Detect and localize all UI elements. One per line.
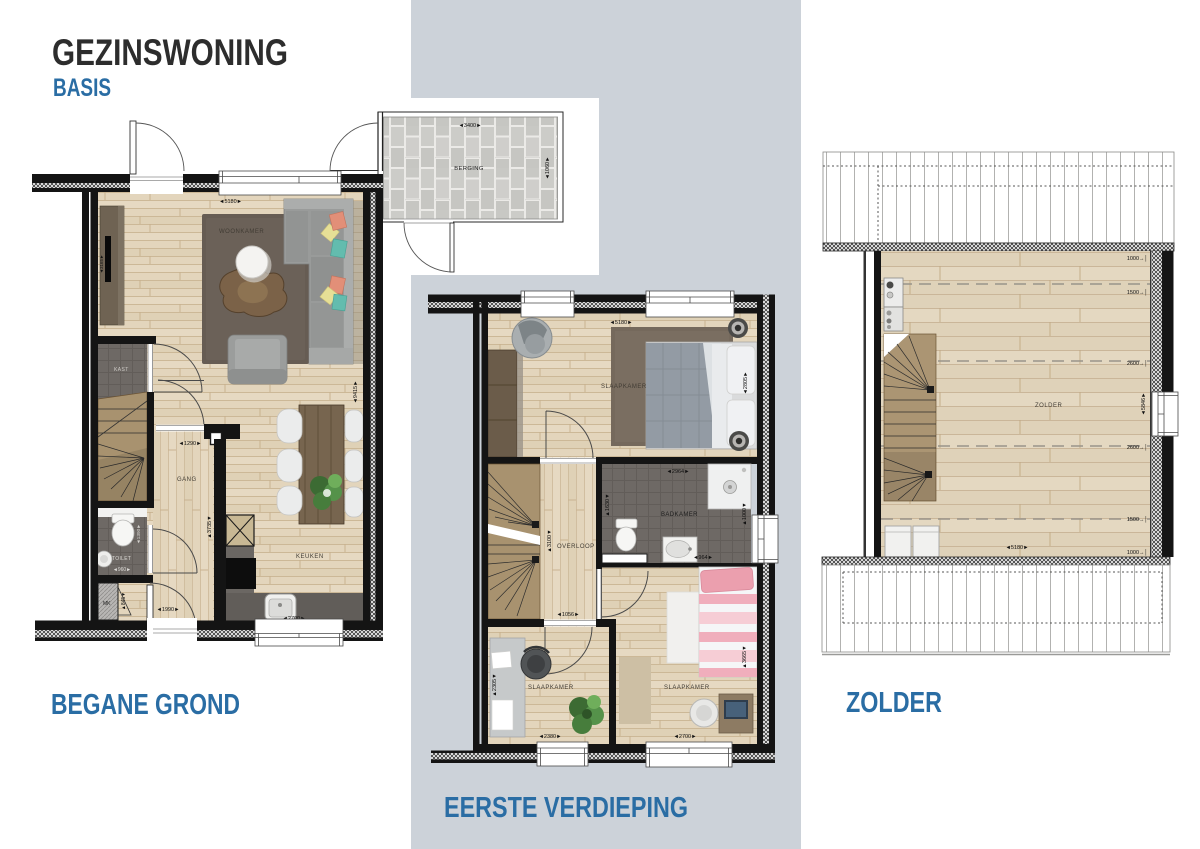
- svg-text:▲3100▼: ▲3100▼: [547, 529, 553, 552]
- svg-text:TOILET: TOILET: [112, 556, 131, 562]
- svg-text:SLAAPKAMER: SLAAPKAMER: [664, 685, 710, 691]
- svg-text:◄1990►: ◄1990►: [156, 607, 179, 613]
- svg-text:◄3400►: ◄3400►: [458, 123, 481, 129]
- svg-text:GANG: GANG: [177, 477, 197, 483]
- svg-text:◄5846►: ◄5846►: [1141, 392, 1147, 415]
- svg-text:▲3665▼: ▲3665▼: [742, 645, 748, 668]
- svg-text:SLAAPKAMER: SLAAPKAMER: [528, 685, 574, 691]
- svg-text:◄2964►: ◄2964►: [666, 469, 689, 475]
- svg-text:KAST: KAST: [114, 367, 129, 373]
- svg-text:◄964►: ◄964►: [693, 555, 713, 561]
- svg-text:◄1060►: ◄1060►: [545, 156, 551, 179]
- svg-text:BASIS: BASIS: [53, 74, 111, 102]
- svg-text:BEGANE GROND: BEGANE GROND: [51, 689, 240, 721]
- svg-text:OVERLOOP: OVERLOOP: [557, 544, 595, 550]
- svg-text:ZOLDER: ZOLDER: [1035, 403, 1063, 409]
- svg-text:◄2805►: ◄2805►: [743, 371, 749, 394]
- svg-text:EERSTE VERDIEPING: EERSTE VERDIEPING: [444, 792, 688, 824]
- svg-text:▲2305▼: ▲2305▼: [492, 673, 498, 696]
- svg-text:WOONKAMER: WOONKAMER: [219, 229, 264, 235]
- svg-text:▲1000▼: ▲1000▼: [742, 502, 748, 525]
- svg-text:◄1056►: ◄1056►: [556, 612, 579, 618]
- svg-text:◄960►: ◄960►: [113, 567, 131, 573]
- svg-text:GEZINSWONING: GEZINSWONING: [52, 32, 288, 73]
- svg-text:BERGING: BERGING: [454, 166, 484, 172]
- svg-text:ZOLDER: ZOLDER: [846, 687, 942, 719]
- svg-text:◄1390►: ◄1390►: [136, 524, 142, 544]
- svg-text:◄5180►: ◄5180►: [1005, 545, 1028, 551]
- svg-text:◄5180►: ◄5180►: [609, 320, 632, 326]
- svg-text:◄5180►: ◄5180►: [219, 199, 242, 205]
- svg-text:1000→│: 1000→│: [1127, 255, 1148, 262]
- svg-text:◄2700►: ◄2700►: [673, 734, 696, 740]
- svg-text:KEUKEN: KEUKEN: [296, 554, 324, 560]
- svg-text:◄2380►: ◄2380►: [538, 734, 561, 740]
- svg-text:▲3735▼: ▲3735▼: [207, 515, 213, 538]
- svg-text:1000→│: 1000→│: [1127, 549, 1148, 556]
- svg-text:2600→│: 2600→│: [1127, 360, 1148, 367]
- svg-text:▲845▼: ▲845▼: [121, 592, 127, 610]
- svg-text:◄9415►: ◄9415►: [353, 380, 359, 403]
- svg-text:SLAAPKAMER: SLAAPKAMER: [601, 384, 647, 390]
- svg-text:BADKAMER: BADKAMER: [661, 512, 698, 518]
- svg-text:1500→│: 1500→│: [1127, 289, 1148, 296]
- svg-text:1500→│: 1500→│: [1127, 516, 1148, 523]
- svg-text:2600→│: 2600→│: [1127, 444, 1148, 451]
- svg-text:▲1630▼: ▲1630▼: [605, 493, 611, 516]
- svg-text:MK: MK: [103, 601, 111, 607]
- svg-text:◄3165►: ◄3165►: [99, 255, 104, 274]
- svg-text:◄1290►: ◄1290►: [178, 441, 201, 447]
